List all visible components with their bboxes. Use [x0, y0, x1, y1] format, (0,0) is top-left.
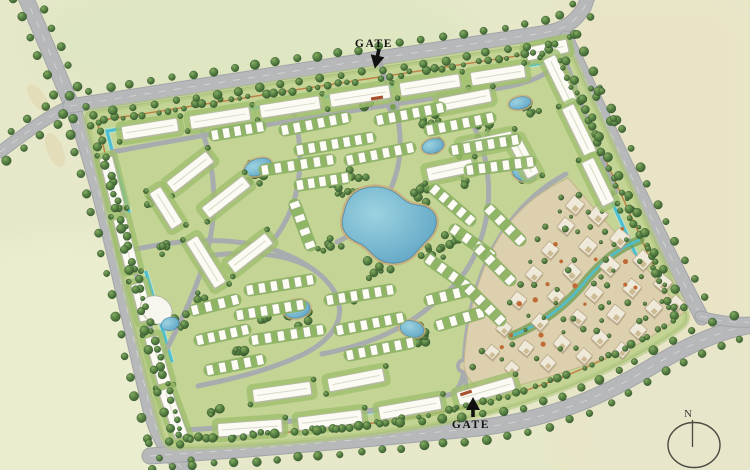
tree-icon	[504, 46, 511, 53]
villa-building	[222, 127, 230, 138]
villa-building	[236, 310, 244, 321]
tree-icon	[335, 80, 342, 87]
tree-icon	[439, 33, 447, 41]
tree-icon	[103, 154, 110, 161]
tree-icon	[670, 237, 678, 245]
villa-building	[341, 173, 349, 184]
tree-icon	[553, 242, 558, 247]
tree-icon	[521, 21, 528, 28]
villa-building	[343, 136, 351, 147]
tree-icon	[527, 110, 534, 117]
tree-icon	[607, 301, 611, 305]
tree-icon	[627, 340, 635, 348]
tree-icon	[294, 54, 302, 62]
villa-building	[282, 279, 290, 290]
tree-icon	[111, 312, 121, 322]
tree-icon	[160, 252, 165, 257]
tree-icon	[252, 458, 261, 467]
tree-icon	[338, 243, 344, 249]
tree-icon	[539, 51, 545, 57]
villa-building	[330, 174, 338, 185]
tree-icon	[571, 316, 577, 322]
tree-icon	[338, 73, 344, 79]
tree-icon	[198, 99, 206, 107]
tree-icon	[132, 286, 140, 294]
tree-icon	[512, 389, 520, 397]
tree-icon	[528, 260, 532, 264]
tree-icon	[296, 78, 303, 85]
villa-building	[326, 295, 334, 306]
tree-icon	[708, 318, 716, 326]
tree-icon	[538, 332, 543, 337]
tree-icon	[216, 404, 225, 413]
tree-icon	[36, 131, 44, 139]
tree-icon	[524, 429, 531, 436]
tree-icon	[107, 83, 116, 92]
tree-icon	[619, 190, 625, 196]
gate-top-label: GATE	[355, 38, 393, 50]
tree-icon	[542, 316, 546, 320]
tree-icon	[140, 296, 145, 301]
tree-icon	[116, 224, 126, 234]
villa-building	[245, 123, 253, 134]
tree-icon	[599, 356, 604, 361]
tree-icon	[355, 174, 363, 182]
tree-icon	[631, 358, 637, 364]
tree-icon	[681, 257, 688, 264]
tree-icon	[612, 269, 616, 273]
tree-icon	[333, 425, 340, 432]
tree-icon	[603, 153, 612, 162]
tree-icon	[588, 86, 593, 91]
tree-icon	[100, 161, 109, 170]
tree-icon	[182, 311, 189, 318]
tree-icon	[315, 85, 320, 90]
tree-icon	[481, 48, 489, 56]
villa-building	[258, 283, 266, 294]
tree-icon	[33, 51, 41, 59]
tree-icon	[576, 192, 582, 198]
tree-icon	[559, 195, 564, 200]
tree-icon	[542, 382, 548, 388]
tree-icon	[463, 52, 471, 60]
tree-icon	[495, 56, 503, 64]
tree-icon	[401, 64, 408, 71]
tree-icon	[671, 318, 676, 323]
villa-building	[256, 121, 264, 132]
tree-icon	[461, 438, 469, 446]
tree-icon	[586, 210, 591, 215]
tree-icon	[208, 412, 213, 417]
tree-icon	[480, 398, 487, 405]
tree-icon	[534, 356, 539, 361]
tree-icon	[177, 427, 181, 431]
tree-icon	[156, 455, 162, 461]
villa-building	[284, 302, 292, 313]
tree-icon	[178, 325, 183, 330]
tree-icon	[480, 27, 487, 34]
tree-icon	[502, 25, 508, 31]
tree-icon	[589, 67, 598, 76]
tree-icon	[445, 406, 453, 414]
tree-icon	[602, 229, 608, 235]
tree-icon	[129, 392, 138, 401]
tree-icon	[313, 52, 323, 62]
tree-icon	[23, 115, 31, 123]
gate-bottom-label: GATE	[452, 419, 490, 431]
tree-icon	[438, 414, 447, 423]
tree-icon	[569, 85, 574, 90]
tree-icon	[503, 432, 511, 440]
tree-icon	[559, 260, 563, 264]
tree-icon	[85, 88, 92, 95]
tree-icon	[599, 240, 603, 244]
tree-icon	[583, 302, 586, 305]
tree-icon	[106, 182, 115, 191]
tree-icon	[407, 69, 412, 74]
tree-icon	[688, 327, 695, 334]
tree-icon	[594, 132, 604, 142]
tree-icon	[541, 16, 550, 25]
tree-icon	[664, 297, 672, 305]
tree-icon	[588, 114, 596, 122]
tree-icon	[572, 257, 577, 262]
tree-icon	[500, 357, 504, 361]
tree-icon	[553, 374, 561, 382]
tree-icon	[436, 246, 443, 253]
tree-icon	[386, 74, 393, 81]
tree-icon	[324, 82, 331, 89]
villa-building	[331, 138, 339, 149]
tree-icon	[578, 384, 586, 392]
tree-icon	[607, 104, 616, 113]
tree-icon	[334, 48, 343, 57]
tree-icon	[661, 324, 667, 330]
tree-icon	[97, 250, 104, 257]
tree-icon	[137, 307, 145, 315]
tree-icon	[160, 408, 169, 417]
tree-icon	[271, 57, 280, 66]
villa-building	[272, 304, 280, 315]
tree-icon	[125, 80, 133, 88]
tree-icon	[523, 43, 531, 51]
tree-icon	[517, 301, 522, 306]
tree-icon	[426, 414, 430, 418]
tree-icon	[115, 198, 122, 205]
villa-building	[294, 277, 302, 288]
tree-icon	[618, 125, 625, 132]
villa-building	[306, 275, 314, 286]
tree-icon	[439, 66, 446, 73]
tree-icon	[644, 378, 652, 386]
tree-icon	[639, 274, 644, 279]
tree-icon	[269, 89, 278, 98]
tree-icon	[536, 108, 542, 114]
tree-icon	[608, 400, 615, 407]
tree-icon	[289, 88, 297, 96]
tree-icon	[174, 417, 180, 423]
tree-icon	[335, 191, 340, 196]
tree-icon	[95, 229, 103, 237]
tree-icon	[120, 246, 128, 254]
villa-building	[386, 285, 394, 296]
tree-icon	[240, 346, 249, 355]
tree-icon	[370, 269, 378, 277]
tree-icon	[520, 388, 527, 395]
villa-building	[211, 129, 219, 140]
tree-icon	[48, 25, 55, 32]
tree-icon	[575, 230, 580, 235]
tree-icon	[270, 429, 279, 438]
tree-icon	[306, 86, 312, 92]
villa-building	[502, 160, 510, 171]
tree-icon	[633, 285, 637, 289]
tree-icon	[461, 181, 469, 189]
tree-icon	[496, 395, 502, 401]
tree-icon	[126, 373, 134, 381]
tree-icon	[419, 418, 426, 425]
tree-icon	[166, 381, 171, 386]
tree-icon	[193, 95, 200, 102]
tree-icon	[210, 101, 217, 108]
tree-icon	[599, 88, 605, 94]
tree-icon	[594, 258, 598, 262]
tree-icon	[659, 265, 667, 273]
tree-icon	[499, 407, 508, 416]
villa-building	[451, 145, 459, 156]
tree-icon	[701, 294, 708, 301]
tree-icon	[509, 333, 513, 337]
tree-icon	[554, 301, 558, 305]
villa-building	[264, 333, 272, 344]
tree-icon	[612, 351, 619, 358]
tree-icon	[97, 128, 104, 135]
villa-building	[354, 134, 362, 145]
tree-icon	[366, 275, 372, 281]
tree-icon	[616, 367, 623, 374]
tree-icon	[130, 104, 137, 111]
tree-icon	[302, 429, 308, 435]
tree-icon	[111, 204, 119, 212]
tree-icon	[558, 346, 563, 351]
tree-icon	[645, 246, 651, 252]
tree-icon	[229, 97, 234, 102]
tree-icon	[541, 342, 546, 347]
tree-icon	[441, 231, 449, 239]
tree-icon	[279, 89, 286, 96]
tree-icon	[21, 145, 28, 152]
tree-icon	[591, 281, 596, 286]
tree-icon	[108, 172, 116, 180]
tree-icon	[636, 318, 642, 324]
villa-building	[277, 331, 285, 342]
villa-building	[338, 293, 346, 304]
tree-icon	[250, 60, 260, 70]
tree-icon	[650, 249, 659, 258]
tree-icon	[622, 346, 628, 352]
tree-icon	[594, 328, 600, 334]
tree-icon	[121, 353, 128, 360]
tree-icon	[663, 283, 667, 287]
villa-building	[261, 165, 269, 176]
tree-icon	[167, 397, 174, 404]
tree-icon	[398, 445, 405, 452]
villa-building	[466, 165, 474, 176]
tree-icon	[77, 170, 85, 178]
villa-building	[475, 141, 483, 152]
tree-icon	[173, 409, 177, 413]
tree-icon	[166, 424, 174, 432]
tree-icon	[575, 91, 580, 96]
tree-icon	[620, 227, 624, 231]
villa-building	[514, 158, 522, 169]
tree-icon	[375, 263, 383, 271]
tree-icon	[157, 111, 162, 116]
tree-icon	[442, 57, 451, 66]
tree-icon	[387, 266, 395, 274]
tree-icon	[316, 246, 321, 251]
tree-icon	[195, 291, 200, 296]
tree-icon	[625, 191, 633, 199]
tree-icon	[378, 76, 384, 82]
tree-icon	[623, 283, 627, 287]
tree-icon	[66, 130, 76, 140]
tree-icon	[441, 255, 446, 260]
tree-icon	[649, 346, 658, 355]
tree-icon	[238, 96, 242, 100]
master-plan-map: GATE GATE N	[0, 0, 750, 470]
tree-icon	[479, 348, 485, 354]
tree-icon	[213, 90, 222, 99]
tree-icon	[461, 63, 466, 68]
tree-icon	[150, 366, 158, 374]
tree-icon	[69, 114, 78, 123]
tree-icon	[139, 112, 146, 119]
tree-icon	[87, 122, 94, 129]
tree-icon	[562, 57, 570, 65]
tree-icon	[71, 148, 79, 156]
tree-icon	[627, 216, 632, 221]
tree-icon	[265, 430, 270, 435]
villa-building	[303, 327, 311, 338]
villa-building	[307, 178, 315, 189]
villa-building	[300, 159, 308, 170]
tree-icon	[617, 208, 623, 214]
villa-building	[318, 176, 326, 187]
tree-icon	[395, 418, 405, 428]
tree-icon	[327, 242, 335, 250]
tree-icon	[479, 410, 486, 417]
tree-icon	[671, 285, 680, 294]
tree-icon	[245, 94, 250, 99]
villa-building	[490, 161, 498, 172]
tree-icon	[598, 304, 604, 310]
tree-icon	[654, 201, 663, 210]
tree-icon	[610, 115, 617, 122]
tree-icon	[510, 342, 515, 347]
tree-icon	[580, 326, 586, 332]
tree-icon	[663, 218, 669, 224]
tree-icon	[439, 439, 447, 447]
tree-icon	[470, 364, 476, 370]
tree-icon	[234, 87, 243, 96]
villa-building	[290, 329, 298, 340]
tree-icon	[730, 311, 739, 320]
tree-icon	[698, 350, 706, 358]
tree-icon	[518, 281, 524, 287]
tree-icon	[54, 120, 62, 128]
villa-building	[287, 161, 295, 172]
tree-icon	[229, 458, 238, 467]
tree-icon	[327, 235, 333, 241]
tree-icon	[352, 79, 358, 85]
tree-icon	[573, 30, 581, 38]
villa-building	[274, 163, 282, 174]
tree-icon	[277, 80, 285, 88]
tree-icon	[637, 259, 642, 264]
tree-icon	[304, 317, 312, 325]
tree-icon	[396, 39, 404, 47]
tree-icon	[358, 68, 366, 76]
tree-icon	[643, 302, 647, 306]
tree-icon	[500, 345, 504, 349]
tree-icon	[643, 316, 648, 321]
tree-icon	[524, 328, 528, 332]
tree-icon	[606, 166, 612, 172]
villa-building	[374, 287, 382, 298]
tree-icon	[118, 331, 125, 338]
villa-building	[251, 335, 259, 346]
tree-icon	[104, 270, 110, 276]
tree-icon	[151, 337, 159, 345]
tree-icon	[586, 410, 593, 417]
tree-icon	[147, 319, 155, 327]
tree-icon	[354, 421, 363, 430]
tree-icon	[165, 108, 171, 114]
tree-icon	[291, 428, 298, 435]
tree-icon	[718, 342, 726, 350]
tree-icon	[108, 290, 116, 298]
tree-icon	[669, 337, 677, 345]
tree-icon	[603, 257, 609, 263]
tree-icon	[173, 108, 178, 113]
tree-icon	[562, 330, 566, 334]
tree-icon	[145, 440, 152, 447]
tree-icon	[527, 314, 531, 318]
tree-icon	[154, 388, 162, 396]
tree-icon	[515, 53, 520, 58]
tree-icon	[257, 180, 263, 186]
tree-icon	[233, 347, 238, 352]
tree-icon	[533, 384, 538, 389]
villa-building	[246, 285, 254, 296]
tree-icon	[542, 258, 548, 264]
tree-icon	[128, 258, 136, 266]
tree-icon	[57, 43, 65, 51]
tree-icon	[574, 346, 579, 351]
tree-icon	[93, 143, 102, 152]
tree-icon	[600, 318, 604, 322]
tree-icon	[563, 371, 571, 379]
tree-icon	[643, 180, 650, 187]
tree-icon	[240, 434, 247, 441]
tree-icon	[417, 36, 424, 43]
villa-building	[248, 308, 256, 319]
tree-icon	[566, 415, 574, 423]
tree-icon	[583, 366, 587, 370]
tree-icon	[520, 405, 527, 412]
tree-icon	[18, 12, 27, 21]
